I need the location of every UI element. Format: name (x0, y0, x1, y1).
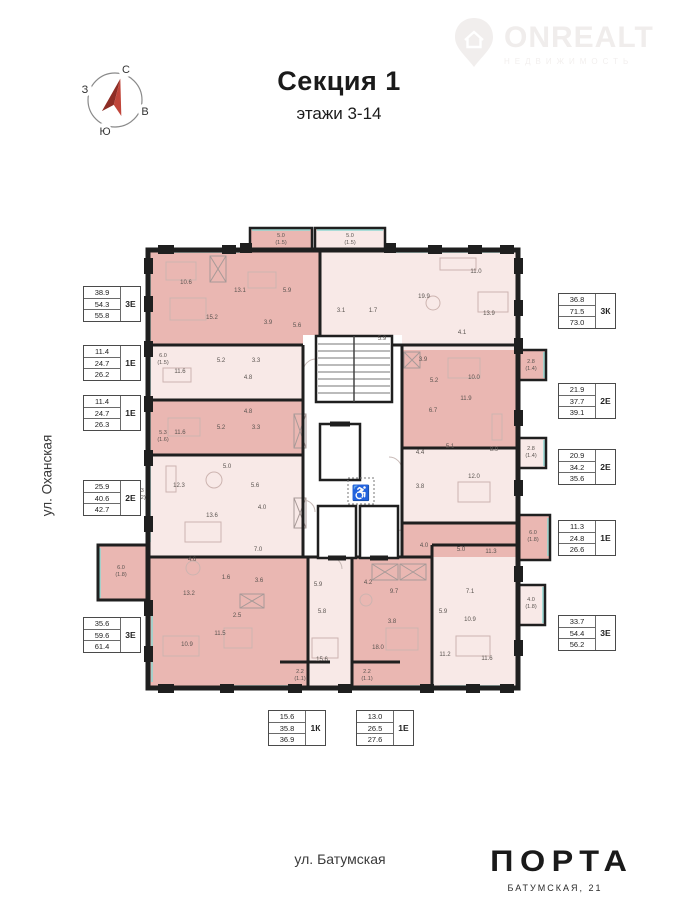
apartment-label: 25.940.642.72Е (83, 480, 141, 516)
room-area-label: 5.0 (223, 464, 231, 470)
apartment-label: 11.424.726.31Е (83, 395, 141, 431)
balcony-area-label: 2.8(1.4) (525, 446, 536, 460)
svg-text:♿: ♿ (352, 484, 371, 502)
room-area-label: 5.9 (314, 582, 322, 588)
room-area-label: 8.9 (490, 447, 498, 453)
apartment-areas: 11.424.726.2 (84, 346, 120, 380)
apartment-type: 3Е (595, 616, 615, 650)
room-area-label: 5.2 (217, 425, 225, 431)
room-area-label: 5.6 (251, 483, 259, 489)
balcony-area-label: 5.0(1.5) (275, 233, 286, 247)
room-area-label: 13.9 (483, 311, 495, 317)
room-area-label: 1.6 (222, 575, 230, 581)
apartment-type: 1Е (120, 346, 140, 380)
room-area-label: 15.6 (316, 657, 328, 663)
room-area-label: 3.9 (419, 357, 427, 363)
room-area-label: 2.5 (233, 613, 241, 619)
room-area-label: 5.0 (457, 547, 465, 553)
apartment-label: 20.934.235.62Е (558, 449, 616, 485)
room-area-label: 18.0 (372, 645, 384, 651)
room-area-label: 10.6 (180, 280, 192, 286)
room-area-label: 3.6 (255, 578, 263, 584)
balcony-area-label: 2.2(1.1) (294, 669, 305, 683)
room-area-label: 3.1 (337, 308, 345, 314)
room-area-label: 11.6 (174, 430, 185, 436)
room-area-label: 4.4 (416, 450, 424, 456)
apartment-type: 1Е (393, 711, 413, 745)
apartment-areas: 38.954.355.8 (84, 287, 120, 321)
balcony-area-label: 4.0(1.8) (525, 597, 536, 611)
apartment-areas: 13.026.527.6 (357, 711, 393, 745)
room-area-label: 15.2 (206, 315, 218, 321)
apartment-label: 11.324.826.61Е (558, 520, 616, 556)
balcony-area-label: 6.0(1.8) (115, 565, 126, 579)
apartment-areas: 33.754.456.2 (559, 616, 595, 650)
apartment-type: 1К (305, 711, 325, 745)
room-area-label: 19.9 (418, 294, 430, 300)
balcony-area-label: 2.8(1.4) (525, 359, 536, 373)
apartment-areas: 25.940.642.7 (84, 481, 120, 515)
apartment-type: 3К (595, 294, 615, 328)
room-area-label: 10.0 (468, 375, 480, 381)
room-area-label: 4.6 (188, 557, 196, 563)
apartment-areas: 11.324.826.6 (559, 521, 595, 555)
room-area-label: 13.2 (183, 591, 195, 597)
apartment-label: 35.659.661.43Е (83, 617, 141, 653)
apartment-areas: 20.934.235.6 (559, 450, 595, 484)
room-area-label: 3.3 (252, 358, 260, 364)
room-area-label: 4.2 (364, 580, 372, 586)
brand-logo: ПОРТА (470, 845, 654, 879)
room-area-label: 9.7 (390, 589, 398, 595)
apartment-label: 21.937.739.12Е (558, 383, 616, 419)
room-area-label: 12.3 (173, 483, 185, 489)
apartment-type: 2Е (595, 450, 615, 484)
apartment-type: 1Е (595, 521, 615, 555)
room-area-label: 11.2 (439, 652, 450, 658)
room-area-label: 10.9 (464, 617, 476, 623)
apartment-type: 2Е (595, 384, 615, 418)
room-area-label: 4.8 (244, 409, 252, 415)
room-area-label: 3.8 (388, 619, 396, 625)
room-area-label: 3.3 (252, 425, 260, 431)
room-area-label: 4.1 (458, 330, 466, 336)
apartment-type: 3Е (120, 618, 140, 652)
room-area-label: 5.6 (293, 323, 301, 329)
balcony-area-label: 5.0(1.5) (344, 233, 355, 247)
staircase (316, 336, 392, 402)
room-area-label: 5.9 (439, 609, 447, 615)
room-area-label: 13.6 (206, 513, 218, 519)
brand-block: ПОРТА БАТУМСКАЯ, 21 (470, 845, 640, 893)
room-area-label: 5.9 (378, 336, 386, 342)
room-area-label: 11.3 (485, 549, 496, 555)
room-area-label: 5.1 (446, 444, 454, 450)
apartment-label: 13.026.527.61Е (356, 710, 414, 746)
room-area-label: 3.8 (416, 484, 424, 490)
room-area-label: 5.2 (217, 358, 225, 364)
room-area-label: 11.6 (174, 369, 185, 375)
room-area-label: 5.8 (318, 609, 326, 615)
apartment-label: 11.424.726.21Е (83, 345, 141, 381)
room-area-label: 4.8 (244, 375, 252, 381)
apartment-label: 38.954.355.83Е (83, 286, 141, 322)
room-area-label: 11.9 (460, 396, 471, 402)
street-label-batumskaya: ул. Батумская (245, 851, 435, 867)
street-label-okhanskaya: ул. Оханская (40, 421, 55, 531)
balcony-area-label: 6.0(1.5) (157, 353, 168, 367)
floor-plan-page: ONREALT НЕДВИЖИМОСТЬ С З Ю В Секция 1 эт… (0, 0, 678, 910)
room-area-label: 6.7 (429, 408, 437, 414)
room-area-label: 5.9 (283, 288, 291, 294)
apartment-areas: 35.659.661.4 (84, 618, 120, 652)
apartment-label: 15.635.836.91К (268, 710, 326, 746)
apartment-label: 33.754.456.23Е (558, 615, 616, 651)
room-area-label: 12.0 (468, 474, 480, 480)
balcony-area-label: 6.0(1.8) (527, 530, 538, 544)
apartment-type: 3Е (120, 287, 140, 321)
brand-address: БАТУМСКАЯ, 21 (470, 883, 640, 893)
apartment-areas: 15.635.836.9 (269, 711, 305, 745)
room-area-label: 11.5 (214, 631, 225, 637)
room-area-label: 4.0 (258, 505, 266, 511)
balcony-area-label: 2.2(1.1) (361, 669, 372, 683)
balcony-area-label: 5.3(1.6) (157, 430, 168, 444)
apartment-areas: 36.871.573.0 (559, 294, 595, 328)
apartment-areas: 11.424.726.3 (84, 396, 120, 430)
room-area-label: 10.9 (181, 642, 193, 648)
room-area-label: 5.2 (430, 378, 438, 384)
apartment-areas: 21.937.739.1 (559, 384, 595, 418)
room-area-label: 7.0 (254, 547, 262, 553)
room-area-label: 1.7 (369, 308, 377, 314)
room-area-label: 4.0 (420, 543, 428, 549)
room-area-label: 11.0 (470, 269, 481, 275)
room-area-label: 7.1 (466, 589, 474, 595)
apartment-type: 2Е (120, 481, 140, 515)
room-area-label: 11.6 (481, 656, 492, 662)
apartment-label: 36.871.573.03К (558, 293, 616, 329)
apartment-type: 1Е (120, 396, 140, 430)
room-area-label: 3.9 (264, 320, 272, 326)
room-area-label: 13.1 (234, 288, 246, 294)
